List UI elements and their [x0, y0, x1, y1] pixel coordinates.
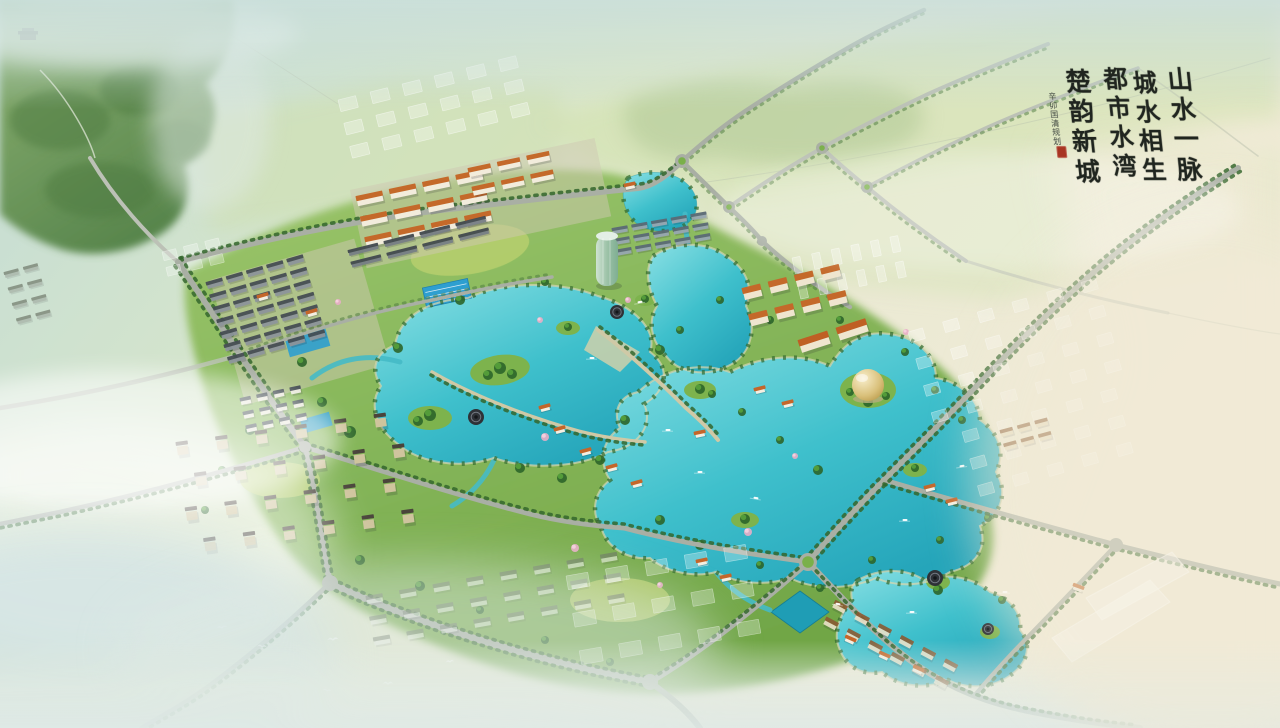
- roundabout: [799, 553, 817, 571]
- round-pavilion: [982, 623, 994, 635]
- masterplan-rendering: 山水一脉 城水相生 都市水湾 楚韵新城 辛卯国清规划: [0, 0, 1280, 728]
- roundabout: [816, 142, 828, 154]
- round-pavilion: [927, 570, 943, 586]
- golden-dome: [852, 369, 884, 403]
- round-pavilion: [468, 409, 484, 425]
- roundabout: [675, 154, 689, 168]
- aerial-scene: [0, 0, 1280, 728]
- round-pavilion: [610, 305, 624, 319]
